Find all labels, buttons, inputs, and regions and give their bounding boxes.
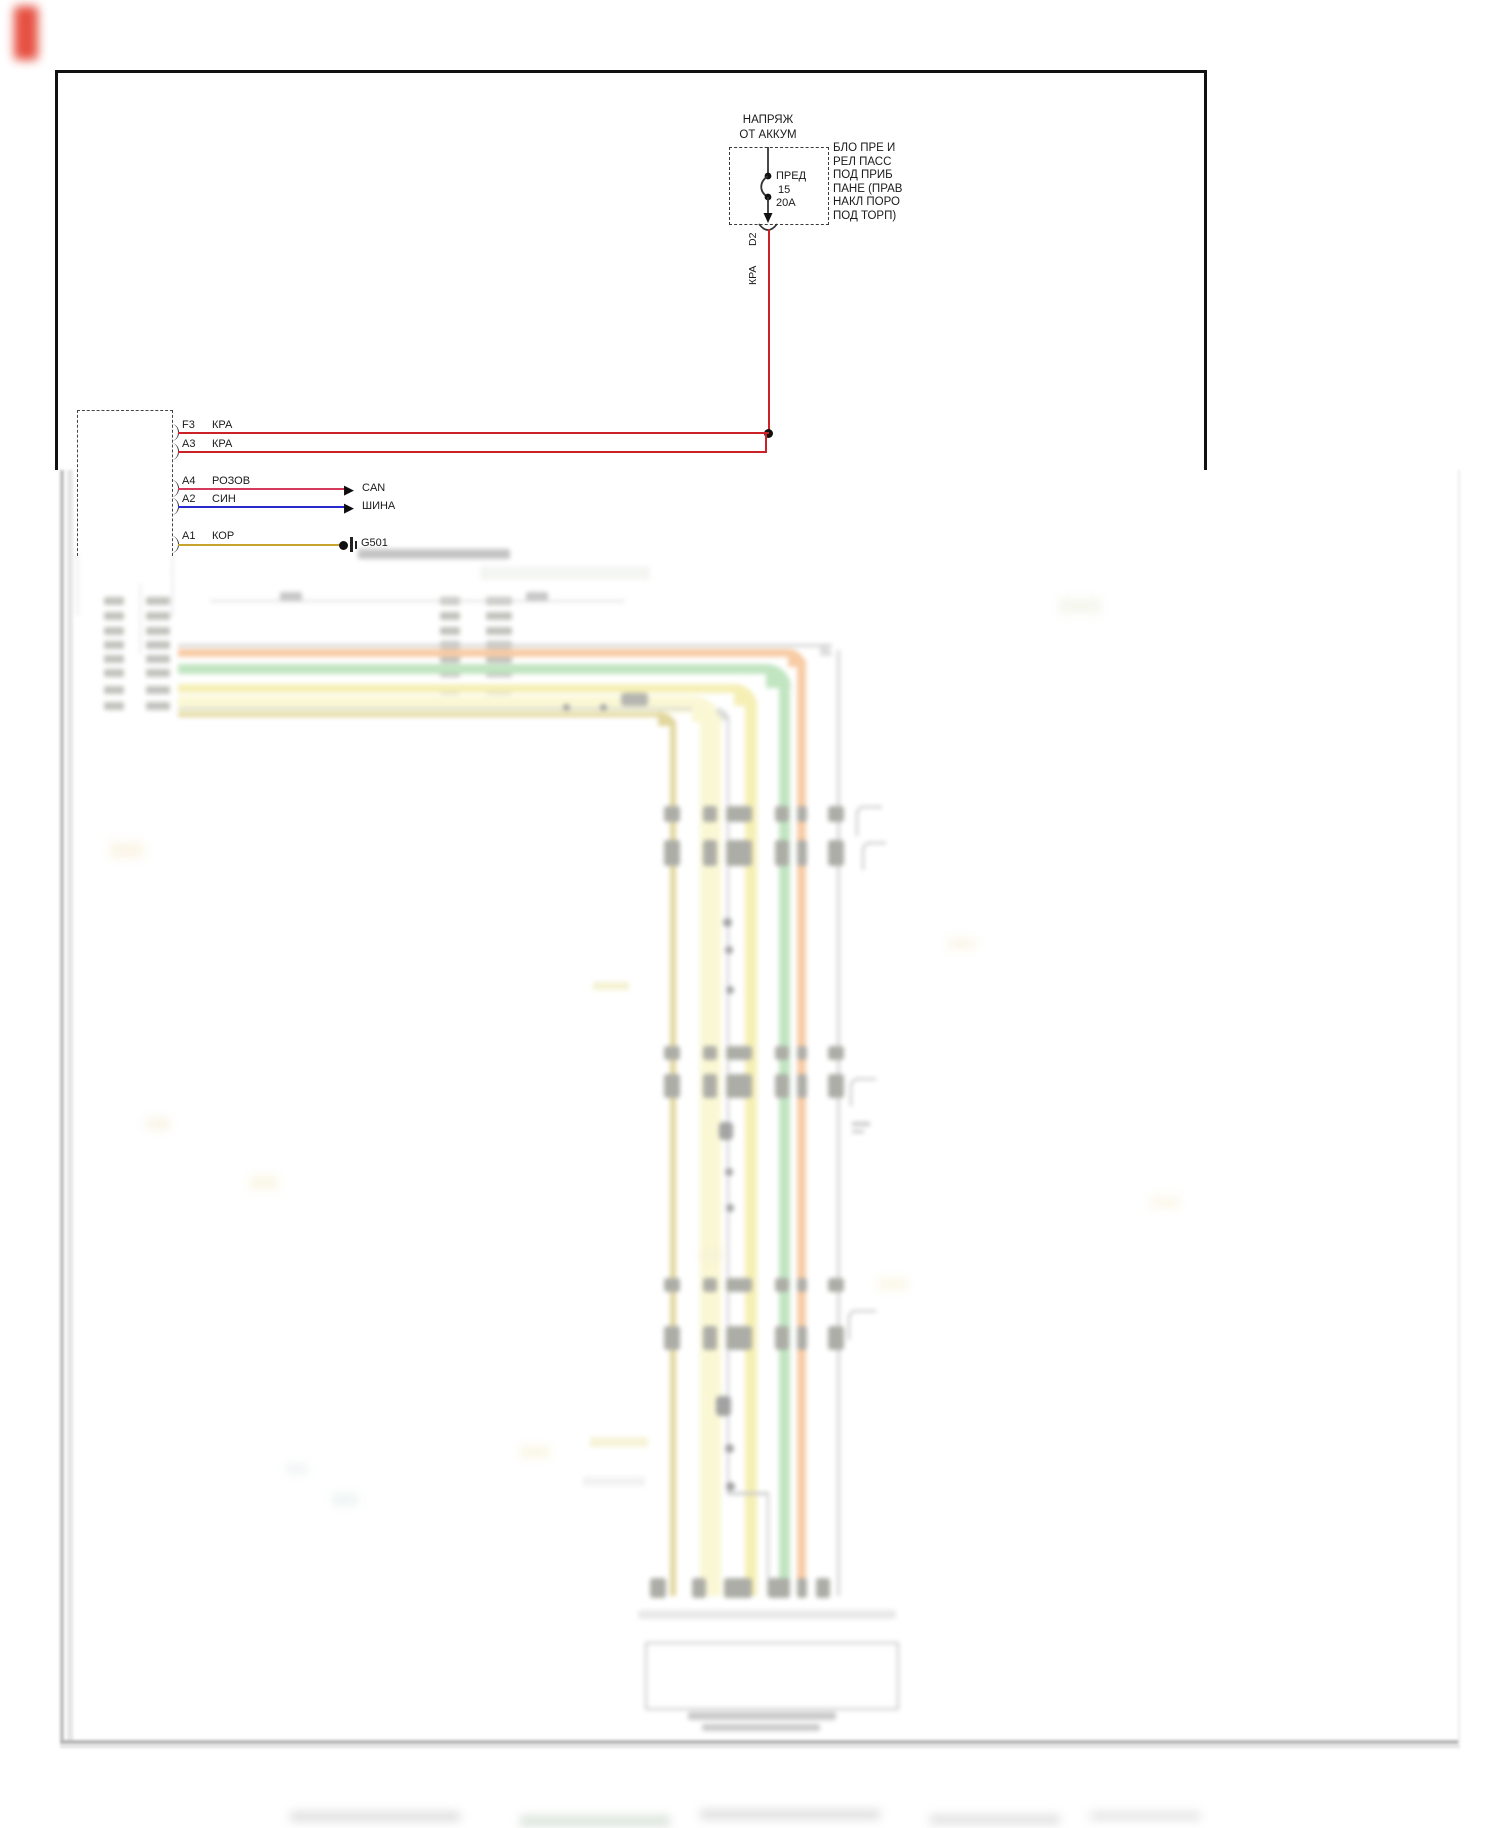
wiring-diagram-page: НАПРЯЖ ОТ АККУМ ПРЕД 15 20A БЛО ПРЕ И РЕ… (0, 0, 1500, 1828)
watermark-smudges (0, 0, 1500, 1828)
